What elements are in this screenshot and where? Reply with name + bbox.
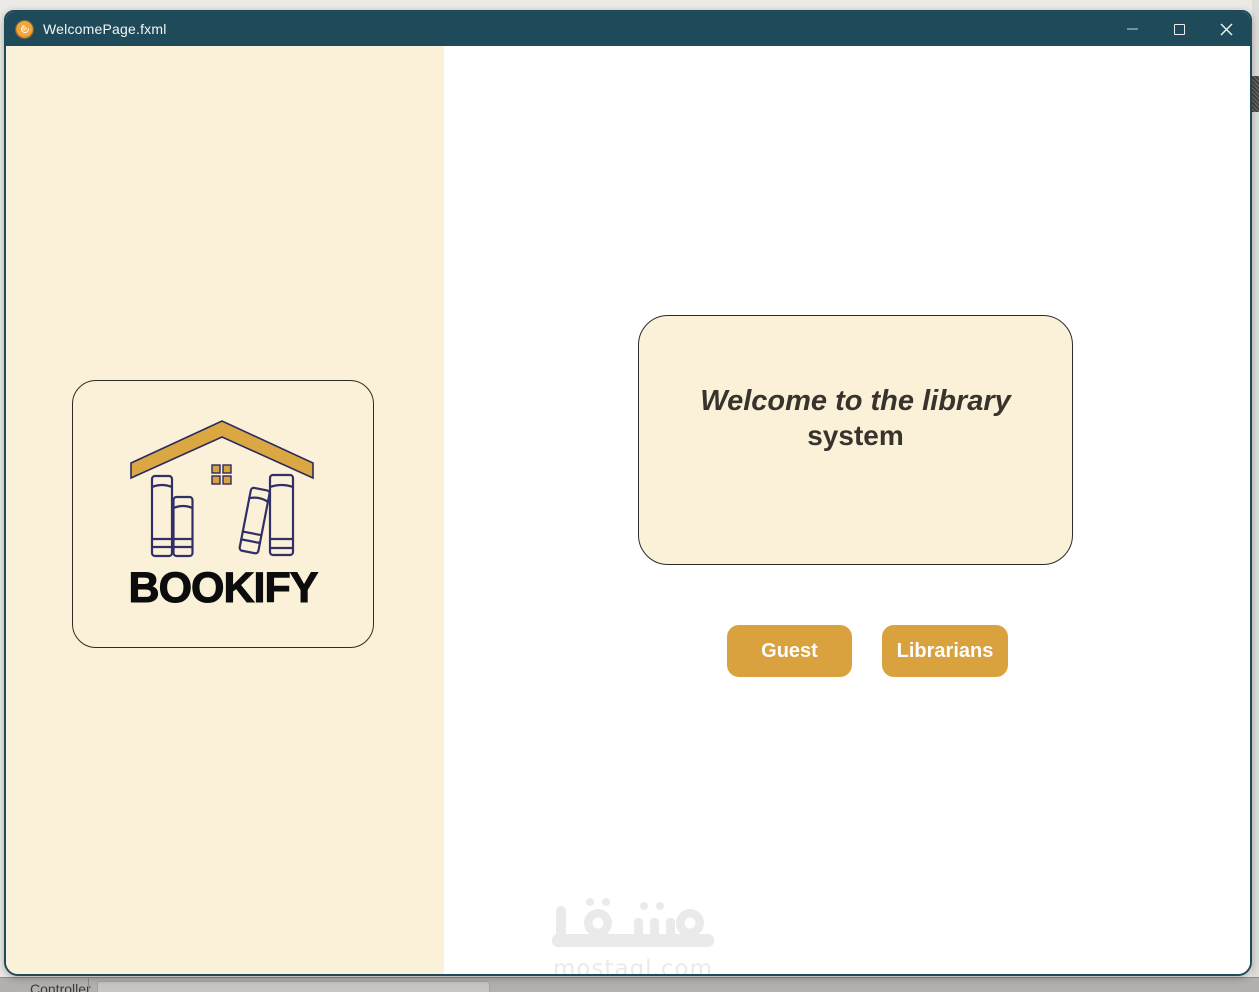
logo-card: BOOKIFY: [72, 380, 374, 648]
watermark: mostaql.com: [548, 896, 718, 976]
welcome-title-line1: Welcome to the library: [639, 384, 1072, 419]
maximize-button[interactable]: [1156, 12, 1203, 46]
window-panes-icon: [212, 465, 231, 484]
titlebar[interactable]: WelcomePage.fxml: [6, 12, 1250, 46]
scrollbar-thumb[interactable]: [1252, 76, 1259, 112]
app-icon: [16, 21, 33, 38]
sidebar: BOOKIFY: [6, 46, 444, 974]
guest-button[interactable]: Guest: [727, 625, 852, 677]
window-content: BOOKIFY Welcome to the library system Gu…: [6, 46, 1250, 974]
background-app-edge: [1252, 0, 1259, 977]
maximize-icon: [1174, 24, 1185, 35]
app-window: WelcomePage.fxml: [4, 10, 1252, 976]
welcome-card: Welcome to the library system: [638, 315, 1073, 565]
controller-label: Controller: [30, 979, 91, 992]
bookify-logo-icon: BOOKIFY: [73, 381, 372, 646]
divider: [88, 978, 89, 992]
books-icon: [152, 475, 293, 556]
roof-icon: [131, 421, 313, 478]
welcome-title-line2: system: [639, 419, 1072, 453]
close-icon: [1220, 23, 1233, 36]
close-button[interactable]: [1203, 12, 1250, 46]
brand-text: BOOKIFY: [129, 564, 318, 612]
minimize-icon: [1127, 28, 1138, 30]
background-app-bottom-bar: Controller: [0, 977, 1259, 992]
controller-field[interactable]: [97, 981, 490, 992]
minimize-button[interactable]: [1109, 12, 1156, 46]
window-controls: [1109, 12, 1250, 46]
main-area: Welcome to the library system Guest Libr…: [444, 46, 1250, 974]
mostaql-arabic-wordmark: [548, 896, 718, 950]
watermark-domain: mostaql.com: [548, 956, 718, 976]
window-title: WelcomePage.fxml: [43, 21, 167, 37]
librarians-button[interactable]: Librarians: [882, 625, 1008, 677]
role-buttons: Guest Librarians: [727, 625, 1008, 677]
